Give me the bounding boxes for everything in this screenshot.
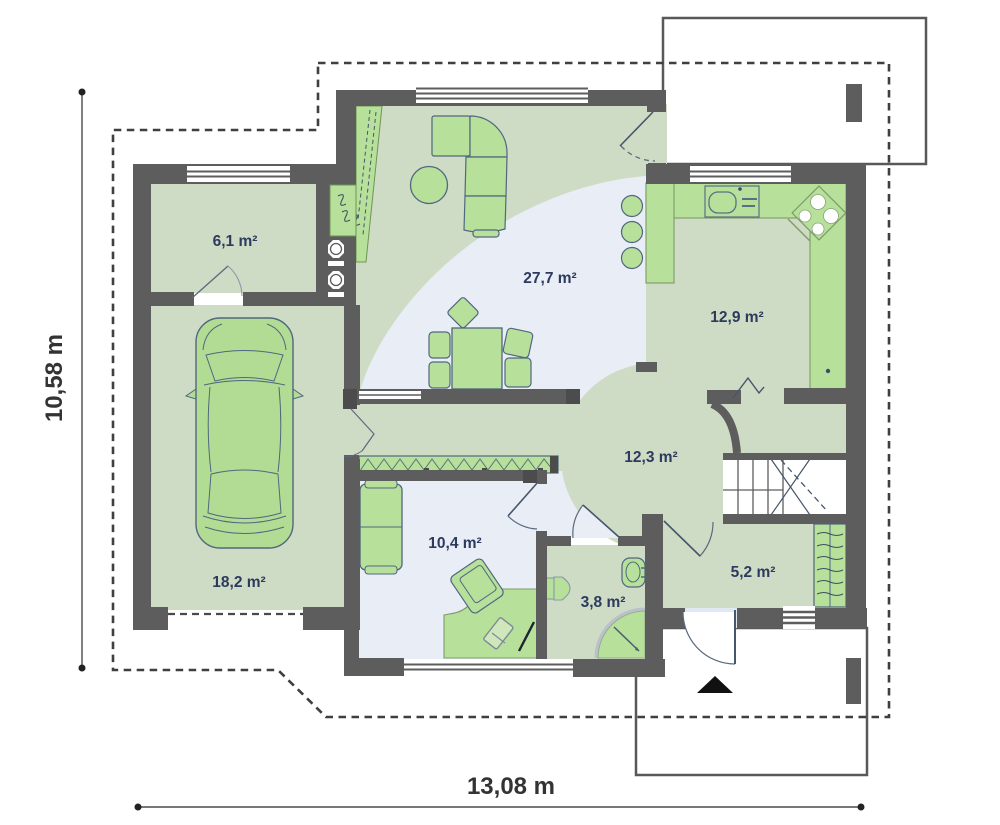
- svg-text:10,4 m²: 10,4 m²: [428, 535, 481, 552]
- svg-text:27,7 m²: 27,7 m²: [523, 270, 576, 287]
- svg-text:6,1 m²: 6,1 m²: [213, 233, 258, 250]
- svg-text:3,8 m²: 3,8 m²: [581, 594, 626, 611]
- svg-text:13,08 m: 13,08 m: [467, 773, 555, 800]
- svg-text:12,3 m²: 12,3 m²: [624, 449, 677, 466]
- svg-text:12,9 m²: 12,9 m²: [710, 309, 763, 326]
- svg-text:10,58 m: 10,58 m: [41, 334, 68, 422]
- svg-text:18,2 m²: 18,2 m²: [212, 574, 265, 591]
- svg-text:5,2 m²: 5,2 m²: [731, 564, 776, 581]
